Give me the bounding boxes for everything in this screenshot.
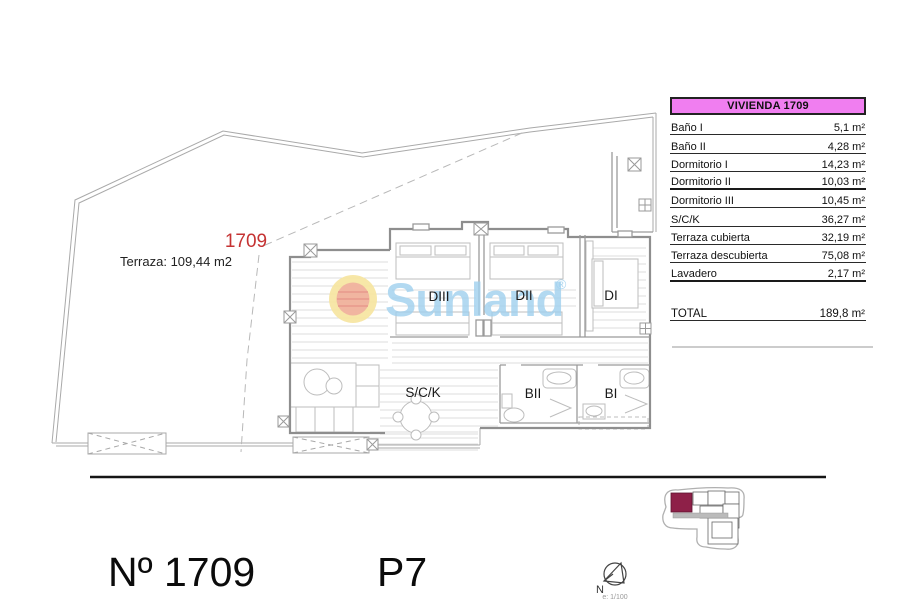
kitchen-sink [304, 369, 330, 395]
row-label: S/C/K [671, 214, 700, 226]
row-value: 5,1 m² [834, 122, 865, 134]
area-table: VIVIENDA 1709 Baño I 5,1 m² Baño II 4,28… [670, 97, 866, 321]
table-row: Baño II 4,28 m² [670, 135, 866, 153]
row-label: Lavadero [671, 268, 717, 280]
sink-bii [504, 408, 524, 422]
row-value: 10,03 m² [822, 176, 865, 188]
terrace-area-label: Terraza: 109,44 m2 [120, 254, 232, 269]
row-value: 10,45 m² [822, 195, 865, 207]
table-row: Lavadero 2,17 m² [670, 263, 866, 281]
table-row: Dormitorio II 10,03 m² [670, 172, 866, 190]
unit-number-label: 1709 [225, 231, 267, 252]
registered-mark: ® [556, 276, 567, 292]
table-row: Terraza descubierta 75,08 m² [670, 245, 866, 263]
row-label: Terraza descubierta [671, 250, 768, 262]
row-label: Dormitorio II [671, 176, 731, 188]
kitchen-island [296, 407, 353, 432]
room-label-di: DI [604, 288, 618, 303]
keyplan-highlight [671, 493, 692, 512]
row-label: Baño II [671, 141, 706, 153]
row-label: Dormitorio I [671, 159, 728, 171]
scale-label: e: 1/100 [602, 594, 627, 600]
row-value: 2,17 m² [828, 268, 865, 280]
total-value: 189,8 m² [820, 308, 865, 320]
row-value: 75,08 m² [822, 250, 865, 262]
row-value: 32,19 m² [822, 232, 865, 244]
room-label-dii: DII [515, 288, 532, 303]
table-row: Dormitorio I 14,23 m² [670, 154, 866, 172]
table-row: Baño I 5,1 m² [670, 117, 866, 135]
table-row: Dormitorio III 10,45 m² [670, 190, 866, 208]
row-label: Terraza cubierta [671, 232, 750, 244]
table-underline [672, 346, 873, 348]
row-value: 14,23 m² [822, 159, 865, 171]
table-row: Terraza cubierta 32,19 m² [670, 227, 866, 245]
north-compass-icon [604, 563, 626, 585]
sun-icon [329, 275, 377, 323]
room-label-bii: BII [525, 386, 542, 401]
room-label-sck: S/C/K [405, 385, 440, 400]
table-total-row: TOTAL 189,8 m² [670, 299, 866, 321]
table-row: S/C/K 36,27 m² [670, 208, 866, 226]
footer-unit-number: Nº 1709 [108, 549, 255, 596]
row-label: Dormitorio III [671, 195, 734, 207]
area-table-header: VIVIENDA 1709 [670, 97, 866, 115]
area-table-rows: Baño I 5,1 m² Baño II 4,28 m² Dormitorio… [670, 117, 866, 282]
brand-text: Sunland [385, 273, 563, 326]
shower-symbol-bi [625, 395, 647, 413]
footer-floor-label: P7 [377, 549, 427, 596]
dining-table [400, 401, 432, 433]
room-label-bi: BI [605, 386, 618, 401]
row-label: Baño I [671, 122, 703, 134]
keyplan-icon [663, 488, 744, 550]
shower-symbol-bii [550, 399, 571, 417]
floorplan-sheet: Sunland ® DIII DII DI S/C/K BII BI 1709 … [0, 0, 900, 600]
row-value: 36,27 m² [822, 214, 865, 226]
room-label-diii: DIII [428, 289, 449, 304]
row-value: 4,28 m² [828, 141, 865, 153]
total-label: TOTAL [671, 308, 707, 320]
